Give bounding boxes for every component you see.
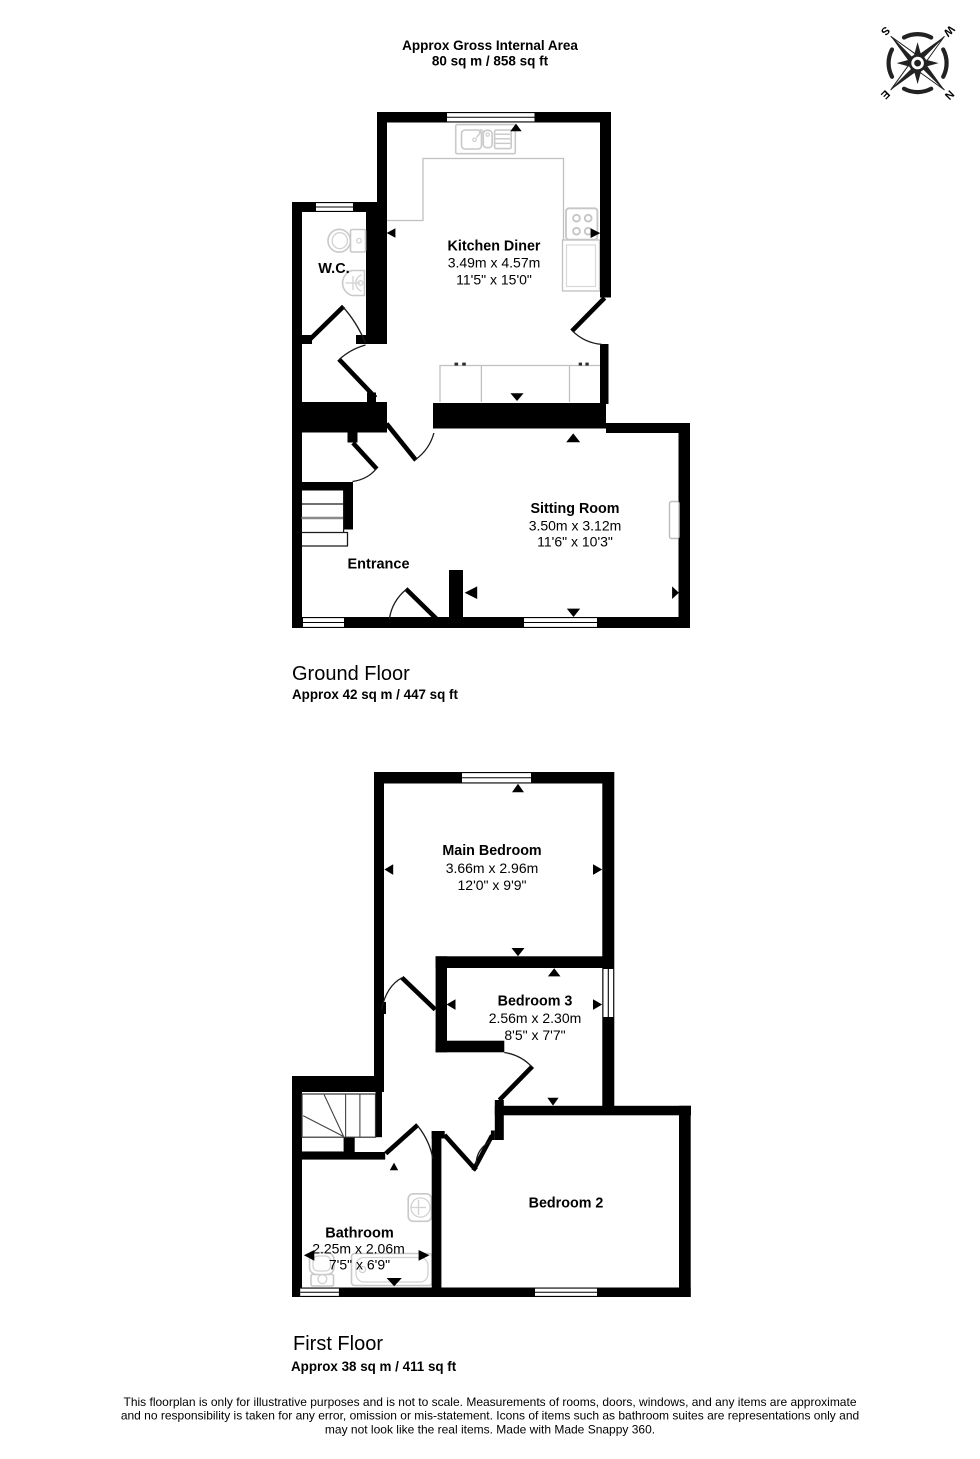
svg-text:2.56m x 2.30m: 2.56m x 2.30m bbox=[489, 1010, 582, 1026]
svg-text:Bedroom 2: Bedroom 2 bbox=[529, 1196, 604, 1212]
svg-text:80 sq m / 858 sq ft: 80 sq m / 858 sq ft bbox=[432, 54, 549, 69]
svg-text:Sitting Room: Sitting Room bbox=[531, 501, 620, 517]
svg-text:11'5" x 15'0": 11'5" x 15'0" bbox=[456, 272, 532, 288]
svg-text:First Floor: First Floor bbox=[293, 1333, 383, 1355]
svg-text:2.25m x 2.06m: 2.25m x 2.06m bbox=[312, 1241, 405, 1257]
svg-text:Bedroom 3: Bedroom 3 bbox=[498, 994, 573, 1010]
svg-text:Kitchen Diner: Kitchen Diner bbox=[448, 239, 541, 255]
svg-text:12'0" x 9'9": 12'0" x 9'9" bbox=[458, 877, 527, 893]
svg-text:3.49m x 4.57m: 3.49m x 4.57m bbox=[448, 255, 541, 271]
svg-text:may not look like the real ite: may not look like the real items. Made w… bbox=[325, 1423, 655, 1437]
svg-text:Entrance: Entrance bbox=[347, 557, 409, 573]
svg-text:Approx 42 sq m / 447 sq ft: Approx 42 sq m / 447 sq ft bbox=[292, 687, 458, 702]
svg-text:8'5" x 7'7": 8'5" x 7'7" bbox=[504, 1027, 565, 1043]
svg-text:3.50m x 3.12m: 3.50m x 3.12m bbox=[529, 518, 622, 534]
svg-text:7'5" x 6'9": 7'5" x 6'9" bbox=[329, 1257, 390, 1273]
svg-text:Ground Floor: Ground Floor bbox=[292, 663, 410, 685]
svg-text:and no responsibility is taken: and no responsibility is taken for any e… bbox=[121, 1409, 859, 1423]
svg-text:W.C.: W.C. bbox=[318, 261, 349, 277]
svg-text:Main Bedroom: Main Bedroom bbox=[442, 843, 541, 859]
svg-text:Bathroom: Bathroom bbox=[325, 1226, 393, 1242]
svg-text:This floorplan is only for ill: This floorplan is only for illustrative … bbox=[123, 1395, 856, 1409]
svg-text:11'6" x 10'3": 11'6" x 10'3" bbox=[537, 534, 613, 550]
svg-text:Approx 38 sq m / 411 sq ft: Approx 38 sq m / 411 sq ft bbox=[291, 1359, 457, 1374]
svg-text:3.66m x 2.96m: 3.66m x 2.96m bbox=[446, 860, 539, 876]
svg-text:Approx Gross Internal Area: Approx Gross Internal Area bbox=[402, 38, 578, 53]
